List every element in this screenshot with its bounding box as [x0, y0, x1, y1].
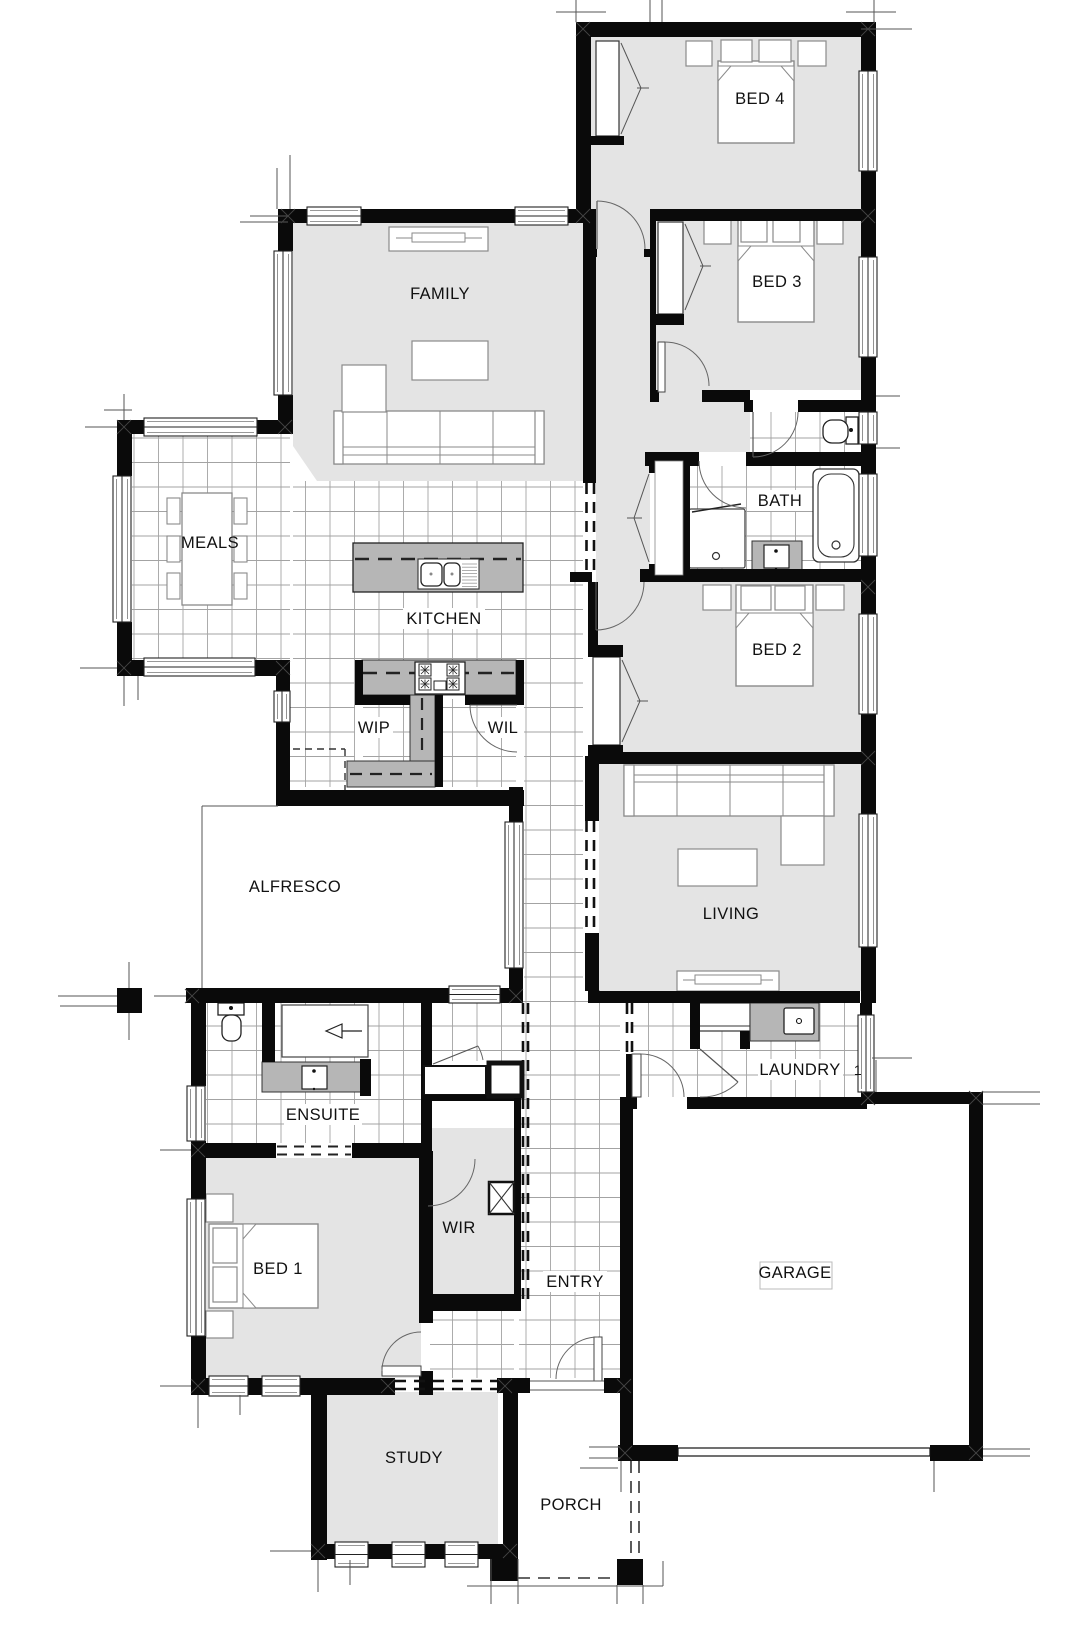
svg-text:ALFRESCO: ALFRESCO: [249, 878, 341, 896]
svg-text:1: 1: [854, 1062, 862, 1078]
svg-text:BED 4: BED 4: [735, 90, 785, 108]
svg-text:KITCHEN: KITCHEN: [406, 610, 481, 628]
svg-text:BED 2: BED 2: [752, 641, 802, 659]
svg-text:LAUNDRY: LAUNDRY: [759, 1061, 840, 1079]
svg-text:STUDY: STUDY: [385, 1449, 443, 1467]
svg-text:ENSUITE: ENSUITE: [286, 1106, 360, 1124]
svg-text:MEALS: MEALS: [181, 534, 239, 552]
svg-text:FAMILY: FAMILY: [410, 285, 470, 303]
svg-text:WIP: WIP: [358, 719, 390, 737]
svg-text:WIR: WIR: [442, 1219, 475, 1237]
svg-text:BED 3: BED 3: [752, 273, 802, 291]
svg-text:GARAGE: GARAGE: [758, 1264, 831, 1282]
svg-text:BATH: BATH: [758, 492, 802, 510]
svg-text:PORCH: PORCH: [540, 1496, 602, 1514]
svg-text:LIVING: LIVING: [703, 905, 760, 923]
svg-text:BED 1: BED 1: [253, 1260, 303, 1278]
svg-text:WIL: WIL: [488, 719, 519, 737]
svg-text:ENTRY: ENTRY: [546, 1273, 604, 1291]
